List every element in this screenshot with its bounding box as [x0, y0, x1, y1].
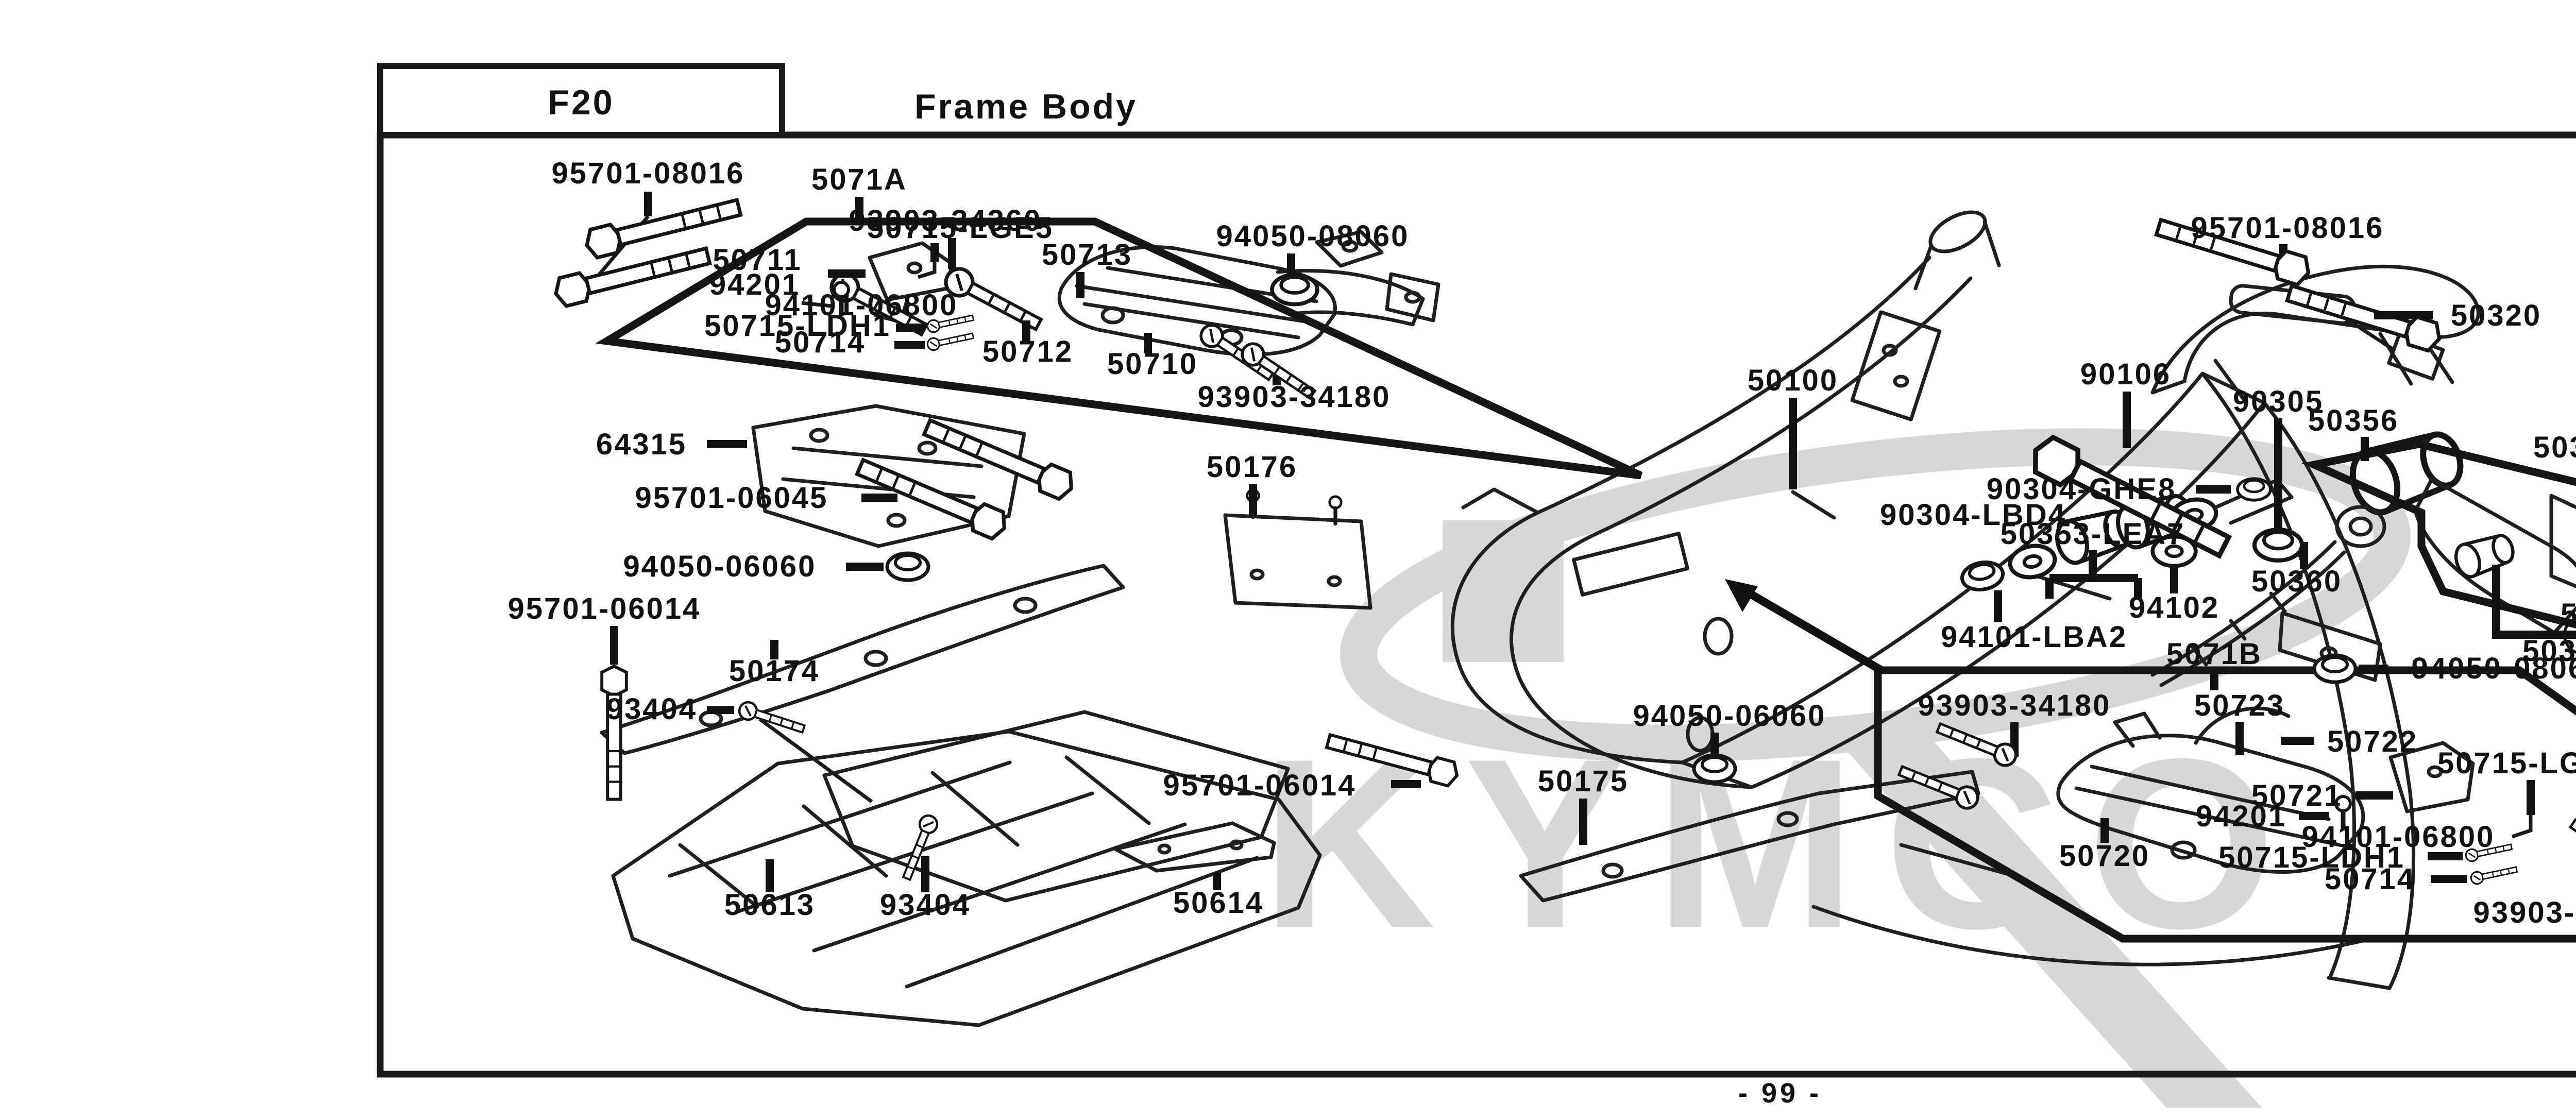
part-label-50723: 50723	[2194, 689, 2285, 722]
part-label-50176: 50176	[1207, 450, 1297, 484]
part-label-50722: 50722	[2327, 725, 2418, 758]
part-label-64315: 64315	[596, 428, 687, 461]
part-label-94050-06060-left: 94050-06060	[623, 550, 817, 583]
parts-diagram-page: KYMCO F20 Frame Body - 99 -	[0, 0, 2576, 1120]
part-label-95701-08016-top-right: 95701-08016	[2191, 211, 2384, 245]
part-label-50613: 50613	[724, 888, 815, 922]
part-label-50715-LGE5-top: 50715-LGE5	[867, 211, 1054, 245]
part-label-50356-left: 50356	[2308, 404, 2399, 437]
part-label-95701-06045: 95701-06045	[635, 481, 828, 515]
part-label-5071A: 5071A	[811, 163, 907, 196]
part-label-50364: 50364	[2561, 598, 2576, 631]
part-label-94050-06060-center: 94050-06060	[1633, 699, 1826, 733]
part-label-93903-34180-top: 93903-34180	[1198, 380, 1391, 414]
page-title: Frame Body	[914, 87, 1138, 126]
part-label-50350: 50350	[2533, 431, 2576, 464]
part-label-50714-top: 50714	[775, 326, 866, 359]
part-label-50714-bottom: 50714	[2325, 862, 2415, 896]
section-code: F20	[548, 83, 614, 122]
part-label-93903-34180-bottom: 93903-34180	[1918, 689, 2111, 722]
part-label-50614: 50614	[1173, 886, 1264, 920]
page-number: - 99 -	[1738, 1078, 1822, 1109]
part-label-94050-08060-top: 94050-08060	[1216, 219, 1410, 253]
part-label-50100: 50100	[1748, 364, 1838, 397]
part-label-50320: 50320	[2451, 299, 2541, 332]
part-label-50353-KGN7: 50353-KGN7	[2522, 634, 2576, 668]
part-label-50720: 50720	[2059, 839, 2150, 873]
part-label-50175: 50175	[1538, 765, 1629, 798]
part-label-90106-left: 90106	[2080, 358, 2171, 391]
part-label-95701-06014-bottom: 95701-06014	[1163, 769, 1357, 802]
part-label-50174: 50174	[729, 654, 820, 688]
part-label-50713: 50713	[1042, 238, 1132, 271]
part-label-93404-bottom: 93404	[880, 888, 971, 922]
part-label-50353-LEA7: 50353-LEA7	[2001, 517, 2185, 551]
part-label-50710: 50710	[1107, 347, 1198, 381]
part-label-94101-LBA2: 94101-LBA2	[1941, 620, 2127, 654]
part-label-94102: 94102	[2129, 591, 2219, 624]
part-label-93404-top: 93404	[606, 692, 697, 726]
part-label-95701-06014-left: 95701-06014	[508, 592, 701, 625]
part-label-50712: 50712	[982, 335, 1073, 368]
part-label-5071B: 5071B	[2166, 637, 2262, 671]
part-label-94201-bottom: 94201	[2196, 800, 2286, 833]
part-label-93903-34360-bottom: 93903-34360	[2473, 896, 2576, 929]
part-label-95701-08016-top-left: 95701-08016	[552, 157, 745, 190]
part-label-50715-LGE5-bottom: 50715-LGE5	[2437, 746, 2576, 780]
part-label-50360: 50360	[2251, 565, 2342, 598]
